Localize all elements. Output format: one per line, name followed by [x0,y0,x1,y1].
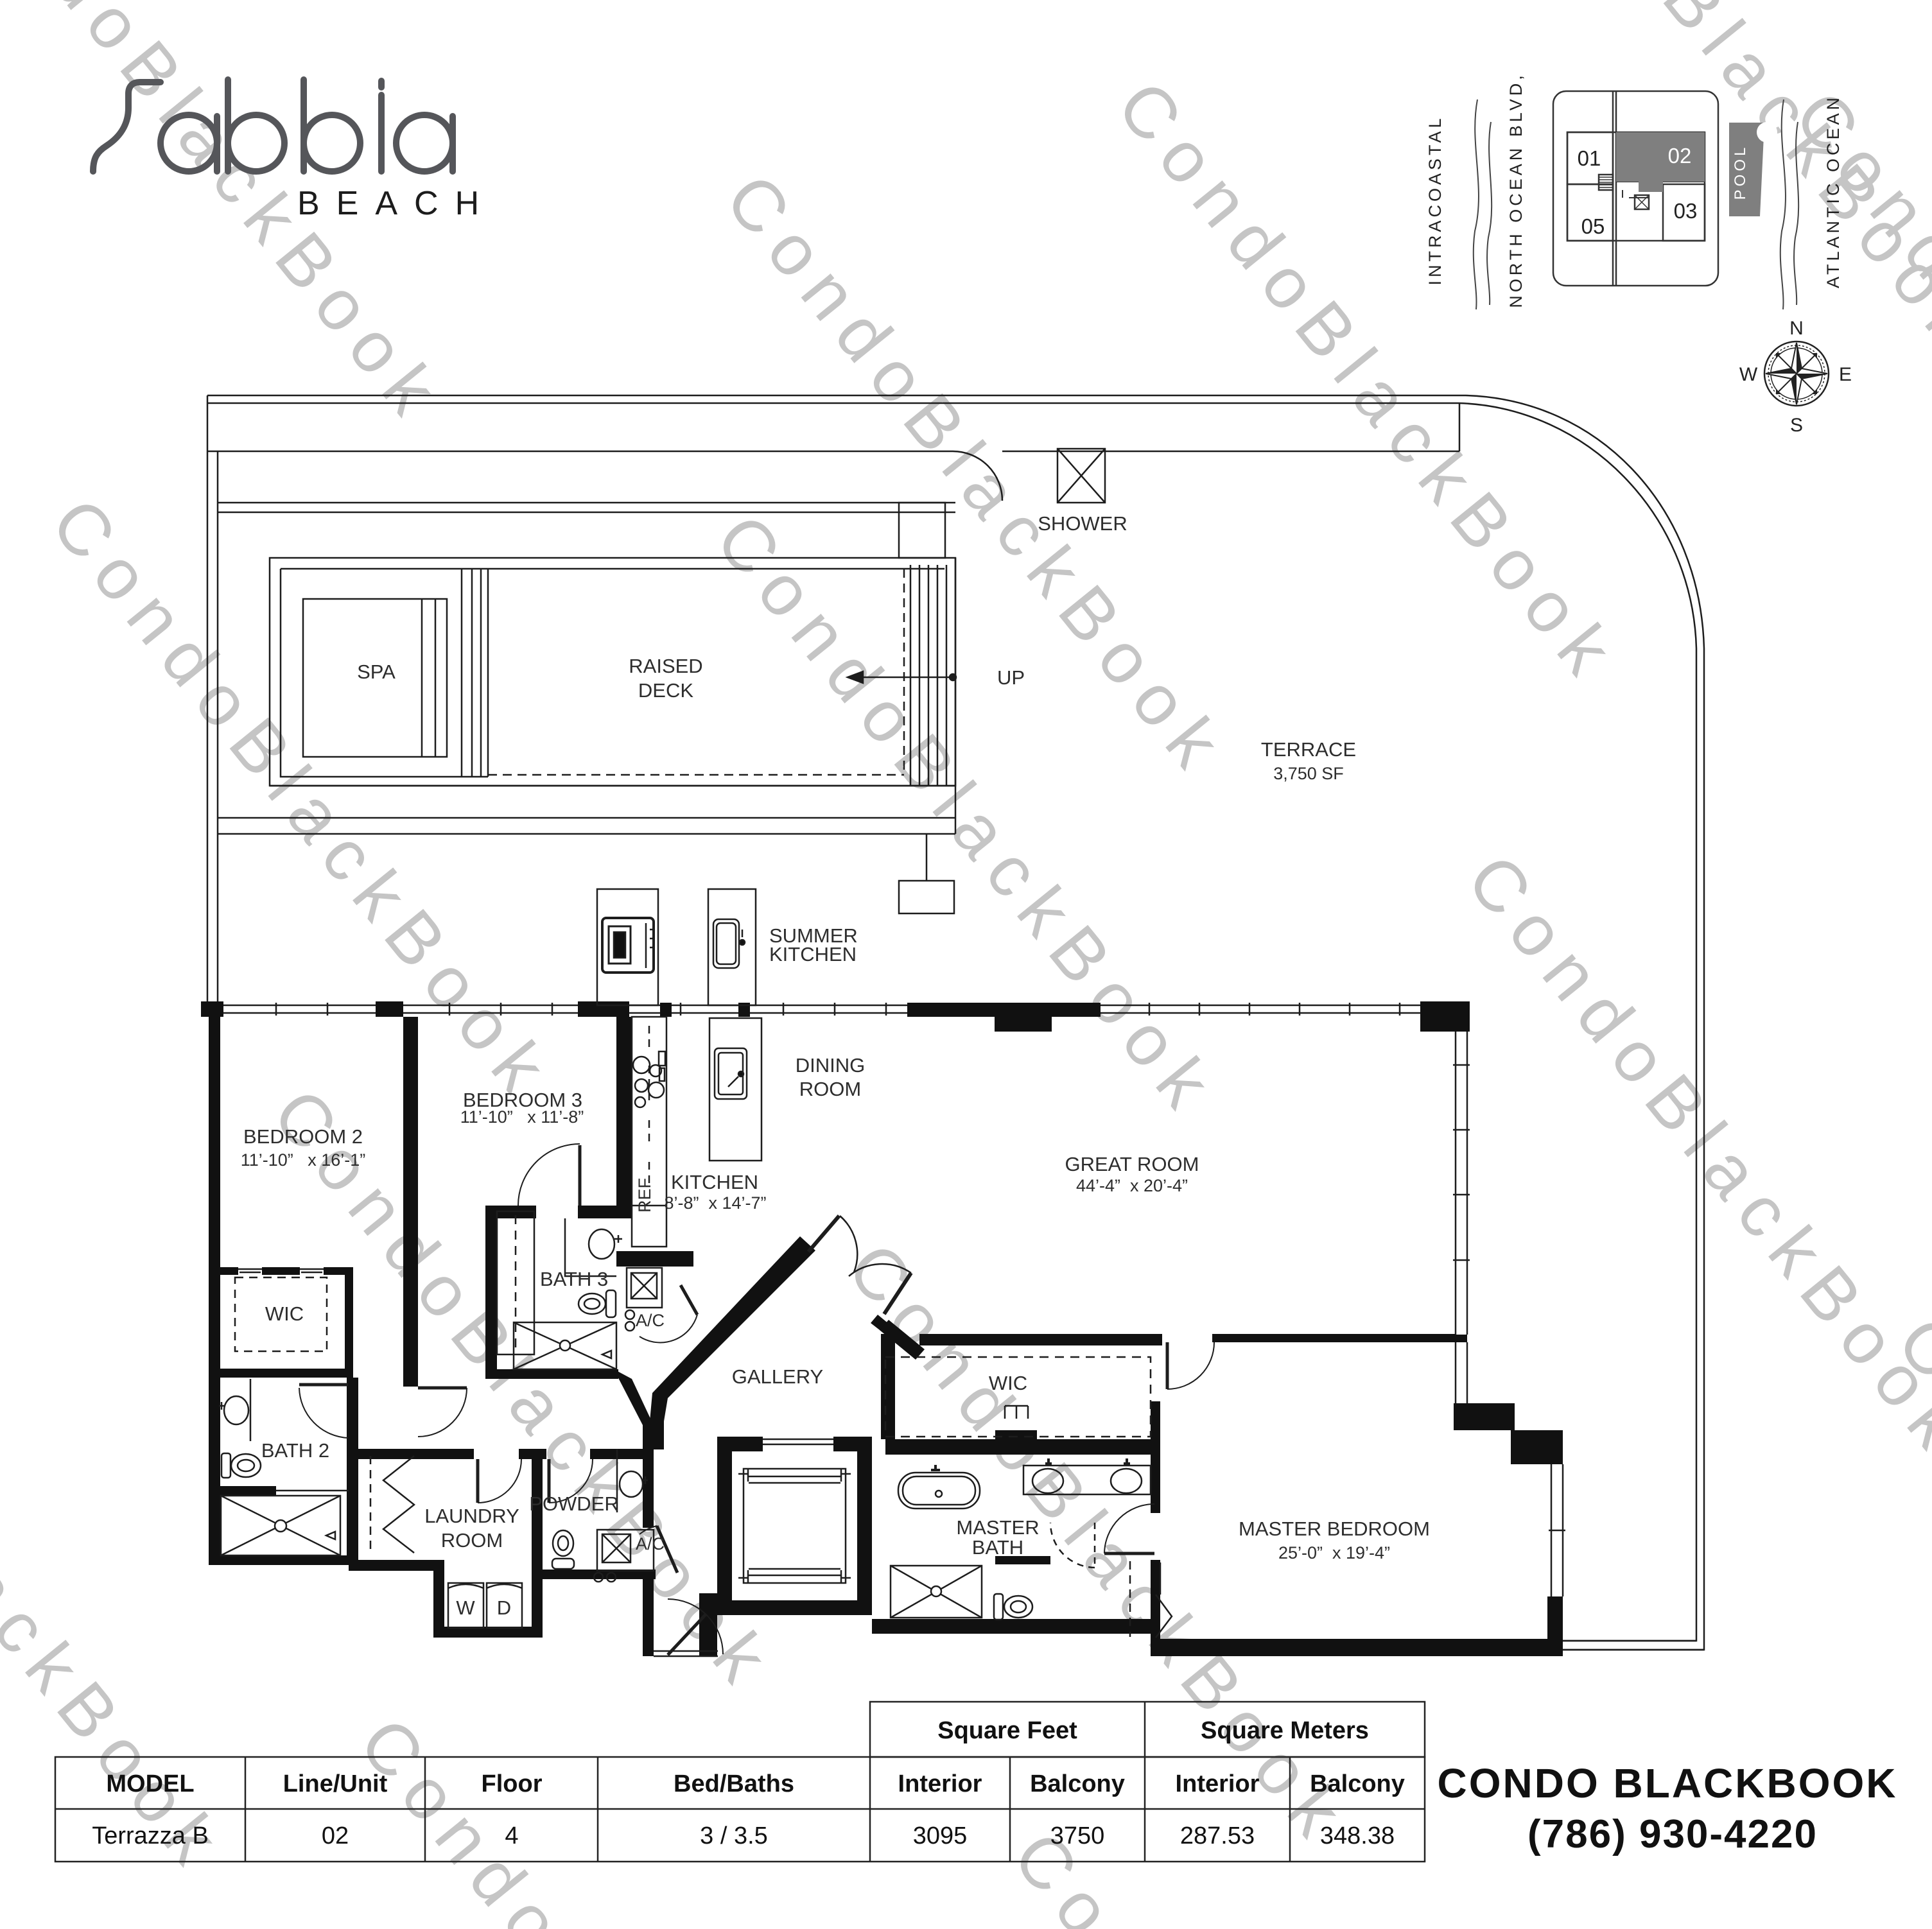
svg-text:UP: UP [997,666,1025,689]
svg-text:GALLERY: GALLERY [732,1365,823,1388]
svg-text:03: 03 [1674,199,1698,223]
svg-text:02: 02 [1668,144,1692,168]
svg-text:POOL: POOL [1732,144,1749,200]
svg-text:Square Feet: Square Feet [937,1717,1077,1744]
svg-text:CondoBlackBook: CondoBlackBook [1102,66,1636,699]
svg-text:ROOM: ROOM [799,1078,861,1100]
svg-text:N: N [1789,318,1804,339]
svg-text:W: W [456,1596,475,1619]
svg-text:05: 05 [1581,214,1605,238]
svg-text:11’-10” x 16’-1”: 11’-10” x 16’-1” [241,1150,366,1170]
svg-text:MASTER BEDROOM: MASTER BEDROOM [1239,1518,1430,1540]
svg-text:MODEL: MODEL [106,1770,194,1797]
svg-text:NORTH OCEAN BLVD,: NORTH OCEAN BLVD, [1506,72,1526,308]
svg-text:CONDO BLACKBOOK: CONDO BLACKBOOK [1438,1760,1898,1806]
svg-text:MASTER: MASTER [956,1516,1039,1539]
svg-text:BATH 2: BATH 2 [261,1439,329,1462]
svg-text:Interior: Interior [898,1770,982,1797]
svg-text:KITCHEN: KITCHEN [769,943,857,965]
svg-text:A/C: A/C [636,1534,665,1553]
svg-text:BATH: BATH [972,1536,1023,1559]
svg-text:A/C: A/C [636,1311,665,1330]
svg-text:GREAT ROOM: GREAT ROOM [1065,1153,1199,1175]
svg-text:SPA: SPA [357,661,396,683]
svg-text:Terrazza B: Terrazza B [92,1822,209,1849]
svg-text:INTRACOASTAL: INTRACOASTAL [1425,115,1445,285]
svg-text:3 / 3.5: 3 / 3.5 [700,1822,768,1849]
svg-text:Balcony: Balcony [1030,1770,1125,1797]
svg-text:3095: 3095 [913,1822,968,1849]
svg-text:CondoBlackBook: CondoBlackBook [710,159,1244,792]
svg-text:ATLANTIC OCEAN: ATLANTIC OCEAN [1823,94,1843,288]
svg-text:LAUNDRY: LAUNDRY [424,1505,519,1527]
svg-text:BEACH: BEACH [297,185,496,222]
svg-text:CondoBlackBook: CondoBlackBook [1470,0,1932,371]
svg-text:WIC: WIC [265,1302,304,1325]
svg-text:ROOM: ROOM [441,1529,503,1552]
svg-text:W: W [1739,364,1758,385]
svg-text:Square Meters: Square Meters [1201,1717,1369,1744]
svg-text:CondoBlackBook: CondoBlackBook [1452,840,1932,1473]
svg-text:SHOWER: SHOWER [1038,512,1127,535]
svg-text:Bed/Baths: Bed/Baths [674,1770,794,1797]
svg-text:DECK: DECK [638,679,693,702]
svg-text:DINING: DINING [796,1054,866,1077]
svg-text:8’-8” x 14’-7”: 8’-8” x 14’-7” [664,1193,766,1213]
svg-text:CondoBlackBook: CondoBlackBook [36,483,570,1116]
svg-text:S: S [1790,415,1803,436]
svg-text:Line/Unit: Line/Unit [283,1770,388,1797]
svg-text:Floor: Floor [482,1770,543,1797]
svg-text:02: 02 [322,1822,349,1849]
svg-text:(786) 930-4220: (786) 930-4220 [1527,1812,1818,1856]
svg-text:TERRACE: TERRACE [1261,738,1356,761]
svg-text:WIC: WIC [989,1372,1027,1394]
svg-text:E: E [1839,364,1852,385]
svg-text:BATH 3: BATH 3 [540,1268,608,1290]
svg-text:287.53: 287.53 [1180,1822,1255,1849]
svg-text:D: D [497,1596,511,1619]
svg-text:REF: REF [635,1178,654,1213]
svg-text:Interior: Interior [1176,1770,1260,1797]
svg-text:RAISED: RAISED [629,655,702,677]
svg-text:KITCHEN: KITCHEN [671,1171,758,1193]
svg-text:44’-4” x 20’-4”: 44’-4” x 20’-4” [1076,1176,1188,1195]
svg-text:CondoBlackBook: CondoBlackBook [701,499,1235,1132]
svg-text:348.38: 348.38 [1320,1822,1395,1849]
svg-text:25’-0” x 19’-4”: 25’-0” x 19’-4” [1278,1543,1390,1562]
svg-text:BEDROOM 2: BEDROOM 2 [243,1125,363,1148]
svg-text:11’-10” x 11’-8”: 11’-10” x 11’-8” [460,1107,584,1127]
svg-text:4: 4 [505,1822,518,1849]
svg-text:POWDER: POWDER [529,1492,619,1515]
svg-text:01: 01 [1578,146,1601,170]
svg-text:Balcony: Balcony [1310,1770,1405,1797]
svg-text:3,750 SF: 3,750 SF [1273,764,1344,783]
svg-text:3750: 3750 [1050,1822,1105,1849]
